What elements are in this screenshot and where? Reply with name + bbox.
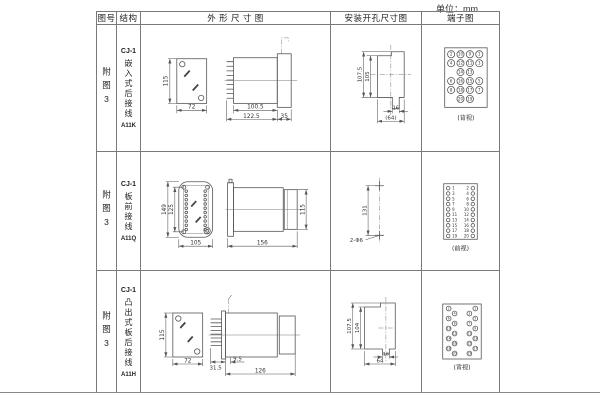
- terminal-number: 1: [452, 186, 455, 191]
- side-view: [226, 179, 303, 236]
- terminal-number: 19: [452, 233, 457, 238]
- dim-label: 64: [376, 358, 383, 364]
- dim-label: 105: [190, 241, 201, 247]
- terminal-grid-2: 1357911131517192468101214161820: [446, 186, 474, 239]
- terminal-circle: [204, 203, 207, 206]
- terminal-number: 8: [454, 322, 456, 326]
- terminal-circle: [471, 218, 475, 222]
- terminal-number: 2: [450, 52, 453, 57]
- screw-hole: [198, 95, 203, 100]
- terminal-number: 7: [478, 87, 481, 92]
- terminal-number: 18: [447, 347, 451, 351]
- terminal-circle: [446, 224, 450, 228]
- terminal-svg-a11h: 2468101214161820135791113151719 (背视): [422, 271, 499, 393]
- mounting-svg-a11h: 107.5 104 16 64: [331, 271, 421, 393]
- structure-row3: CJ-1 凸出式板后接线 A11H: [117, 271, 141, 393]
- terminal-number: 7: [468, 322, 470, 326]
- dim-label: 16: [393, 106, 399, 112]
- terminal-number: 9: [469, 52, 472, 57]
- terminal-number: 19: [467, 96, 472, 101]
- terminal-number: 16: [458, 78, 463, 83]
- outline-drawing-row2: 149 125 105 156 115: [141, 152, 331, 271]
- dim-label: 149: [162, 204, 168, 215]
- mounting-drawing-row1: 107.5 105 16 (64): [331, 25, 422, 152]
- header-structure: 结构: [117, 12, 141, 25]
- terminal-number: 20: [458, 96, 463, 101]
- dim-label: 104: [355, 322, 361, 333]
- terminal-circle: [446, 208, 450, 212]
- terminal-pins: [211, 319, 222, 346]
- terminal-circle: [446, 192, 450, 196]
- terminal-circle: [446, 234, 450, 238]
- hole-callout: 2-Φ6: [350, 238, 364, 244]
- dim-label: 107.5: [358, 67, 364, 83]
- terminal-number: 11: [467, 61, 472, 66]
- terminal-circle: [471, 224, 475, 228]
- terminal-circle: [204, 198, 207, 201]
- dim-label: 72: [188, 104, 196, 110]
- fig-no-row2: 附图3: [97, 152, 117, 271]
- front-view: [173, 313, 203, 357]
- hatch-mark: [191, 201, 200, 222]
- terminal-circle: [185, 198, 188, 201]
- terminal-number: 17: [473, 347, 477, 351]
- terminal-number: 8: [466, 202, 469, 207]
- terminal-number: 5: [452, 196, 455, 201]
- dim-label: 115: [300, 204, 306, 215]
- terminal-number: 18: [458, 87, 463, 92]
- terminal-circle: [185, 224, 188, 227]
- mounting-svg-a11q: 131 2-Φ6: [331, 152, 421, 270]
- terminal-circle: [185, 220, 188, 223]
- cutout-outline: [365, 303, 396, 354]
- mounting-svg-a11k: 107.5 105 16 (64): [331, 25, 421, 151]
- terminal-svg-a11q: 1357911131517192468101214161820 (前视): [422, 152, 499, 270]
- outline-svg-a11h: 115 72 31.5 9.5 126: [141, 271, 330, 393]
- terminal-circle: [446, 186, 450, 190]
- dim-label: 125: [169, 204, 175, 215]
- header-outline-dims: 外 形 尺 寸 图: [141, 12, 331, 25]
- terminal-number: 4: [450, 61, 453, 66]
- dim-label: 100.5: [247, 104, 264, 110]
- terminal-drawing-row1: 2109141211314136161558181772019 (背视): [422, 25, 499, 152]
- terminal-circle: [471, 213, 475, 217]
- structure-label: 板前接线: [123, 192, 134, 232]
- structure-row2: CJ-1 板前接线 A11Q: [117, 152, 141, 271]
- dim-label: 156: [257, 241, 268, 247]
- terminal-number: 7: [452, 202, 455, 207]
- terminal-number: 10: [458, 52, 463, 57]
- terminal-number: 16: [453, 342, 457, 346]
- dim-label: 72: [184, 358, 192, 364]
- fig-no-label: 附图3: [101, 311, 113, 353]
- terminal-number: 2: [466, 186, 469, 191]
- side-view: [209, 295, 301, 359]
- mounting-drawing-row3: 107.5 104 16 64: [331, 271, 422, 393]
- terminal-number: 20: [453, 352, 457, 356]
- header-mounting-dims: 安装开孔尺寸图: [331, 12, 422, 25]
- terminal-number: 4: [454, 312, 456, 316]
- view-caption: (背视): [453, 363, 470, 371]
- dim-label: 9.5: [233, 356, 242, 362]
- dim-label: 126: [255, 368, 266, 374]
- type-code-label: A11K: [121, 123, 136, 129]
- terminal-number: 14: [447, 337, 451, 341]
- terminal-number: 11: [467, 332, 471, 336]
- structure-label: 嵌入式后接线: [123, 59, 134, 119]
- terminal-number: 4: [466, 191, 469, 196]
- terminal-circle: [446, 213, 450, 217]
- fig-no-label: 附图3: [101, 190, 113, 232]
- terminal-number: 1: [474, 307, 476, 311]
- terminal-circle: [471, 186, 475, 190]
- terminal-number: 15: [452, 223, 457, 228]
- terminal-circle: [204, 224, 207, 227]
- terminal-number: 3: [478, 61, 481, 66]
- dim-label: (64): [385, 116, 396, 122]
- header-terminal-diagram: 端子图: [422, 12, 499, 25]
- hatch-mark: [184, 71, 198, 91]
- outline-drawing-row1: 115 72 100.5 122.5 35: [141, 25, 331, 152]
- dimensions: 115 72 100.5 122.5 35: [163, 59, 291, 122]
- terminal-circle: [185, 211, 188, 214]
- dim-label: 31.5: [210, 365, 222, 371]
- structure-row1: CJ-1 嵌入式后接线 A11K: [117, 25, 141, 152]
- panel-dashed-line: [281, 38, 288, 54]
- plate-terminal-dots: [185, 190, 206, 231]
- front-view: [177, 59, 207, 104]
- terminal-circle: [204, 211, 207, 214]
- terminal-number: 6: [448, 317, 450, 321]
- dim-label: 107.5: [347, 318, 353, 334]
- terminal-circle: [185, 190, 188, 193]
- dim-label: 35: [281, 114, 289, 120]
- terminal-number: 9: [452, 207, 455, 212]
- terminal-circle: [204, 190, 207, 193]
- terminal-number: 10: [447, 327, 451, 331]
- fig-no-row1: 附图3: [97, 25, 117, 152]
- terminal-number: 12: [464, 212, 469, 217]
- type-code-label: A11Q: [121, 236, 136, 242]
- outline-svg-a11q: 149 125 105 156 115: [141, 152, 330, 270]
- leader-line: [366, 236, 379, 240]
- spec-sheet-page: 单位：mm 图号 结构 外 形 尺 寸 图 安装开孔尺寸图 端子图 附图3 CJ…: [0, 0, 600, 400]
- outline-drawing-row3: 115 72 31.5 9.5 126: [141, 271, 331, 393]
- terminal-number: 13: [467, 70, 472, 75]
- terminal-number: 14: [458, 70, 463, 75]
- terminal-circle: [446, 218, 450, 222]
- outline-svg-a11k: 115 72 100.5 122.5 35: [141, 25, 330, 151]
- terminal-circle: [471, 208, 475, 212]
- terminal-circle: [185, 215, 188, 218]
- fig-no-label: 附图3: [101, 67, 113, 109]
- terminal-number: 6: [466, 196, 469, 201]
- fig-no-row3: 附图3: [97, 271, 117, 393]
- terminal-number: 17: [467, 87, 472, 92]
- terminal-number: 10: [464, 207, 469, 212]
- side-view: [225, 38, 298, 107]
- terminal-number: 12: [458, 61, 463, 66]
- terminal-circle: [471, 229, 475, 233]
- terminal-number: 12: [453, 332, 457, 336]
- terminal-number: 3: [452, 191, 455, 196]
- terminal-number: 15: [467, 342, 471, 346]
- terminal-circle: [446, 229, 450, 233]
- spec-table: 图号 结构 外 形 尺 寸 图 安装开孔尺寸图 端子图 附图3 CJ-1 嵌入式…: [96, 11, 500, 393]
- type-code-label: A11H: [121, 372, 136, 378]
- terminal-number: 19: [467, 352, 471, 356]
- terminal-circle: [471, 197, 475, 201]
- terminal-number: 13: [473, 337, 477, 341]
- terminal-circle: [204, 220, 207, 223]
- terminal-number: 18: [464, 228, 469, 233]
- terminal-number: 6: [450, 78, 453, 83]
- bottom-rule: [0, 392, 600, 393]
- screw-hole: [195, 349, 200, 354]
- terminal-circle: [204, 207, 207, 210]
- terminal-number: 9: [474, 327, 476, 331]
- dim-label: 16: [383, 352, 389, 358]
- terminal-grid-1: 2109141211314136161558181772019: [448, 51, 483, 103]
- terminal-number: 3: [468, 312, 470, 316]
- dimensions: 115 72 31.5 9.5 126: [160, 313, 295, 376]
- view-caption: (背视): [457, 114, 474, 122]
- terminal-grid-3: 2468101214161820135791113151719: [446, 306, 477, 356]
- terminal-number: 2: [448, 307, 450, 311]
- terminal-number: 16: [464, 223, 469, 228]
- screw-hole: [176, 316, 181, 321]
- terminal-number: 13: [452, 218, 457, 223]
- hatch-mark: [180, 323, 192, 343]
- terminal-number: 5: [474, 317, 476, 321]
- terminal-svg-a11k: 2109141211314136161558181772019 (背视): [422, 25, 499, 151]
- terminal-circle: [185, 207, 188, 210]
- dim-label: 115: [163, 75, 169, 86]
- terminal-circle: [185, 228, 188, 231]
- terminal-number: 15: [467, 78, 472, 83]
- terminal-pins: [227, 62, 234, 99]
- terminal-number: 8: [450, 87, 453, 92]
- terminal-circle: [471, 202, 475, 206]
- terminal-number: 1: [478, 52, 481, 57]
- terminal-circle: [204, 215, 207, 218]
- model-label: CJ-1: [121, 287, 136, 294]
- terminal-number: 11: [452, 212, 457, 217]
- dim-label: 115: [160, 329, 166, 340]
- terminal-circle: [471, 234, 475, 238]
- dim-label: 131: [362, 205, 368, 215]
- terminal-circle: [204, 228, 207, 231]
- terminal-circle: [204, 194, 207, 197]
- model-label: CJ-1: [121, 48, 136, 55]
- terminal-drawing-row2: 1357911131517192468101214161820 (前视): [422, 152, 499, 271]
- view-caption: (前视): [452, 245, 469, 253]
- terminal-number: 20: [464, 233, 469, 238]
- model-label: CJ-1: [121, 181, 136, 188]
- structure-label: 凸出式板后接线: [123, 298, 134, 368]
- center-lines: [378, 297, 394, 361]
- terminal-circle: [185, 203, 188, 206]
- terminal-drawing-row3: 2468101214161820135791113151719 (背视): [422, 271, 499, 393]
- terminal-circle: [446, 202, 450, 206]
- terminal-number: 17: [452, 228, 457, 233]
- terminal-number: 14: [464, 218, 469, 223]
- terminal-circle: [185, 194, 188, 197]
- mounting-drawing-row2: 131 2-Φ6: [331, 152, 422, 271]
- terminal-circle: [446, 197, 450, 201]
- header-fig-no: 图号: [97, 12, 117, 25]
- front-view: [179, 182, 213, 238]
- dim-label: 122.5: [243, 114, 260, 120]
- screw-hole: [180, 62, 185, 67]
- dimensions: 149 125 105 156 115: [162, 182, 308, 248]
- terminal-number: 5: [478, 78, 481, 83]
- dim-label: 105: [365, 71, 371, 81]
- terminal-circle: [471, 192, 475, 196]
